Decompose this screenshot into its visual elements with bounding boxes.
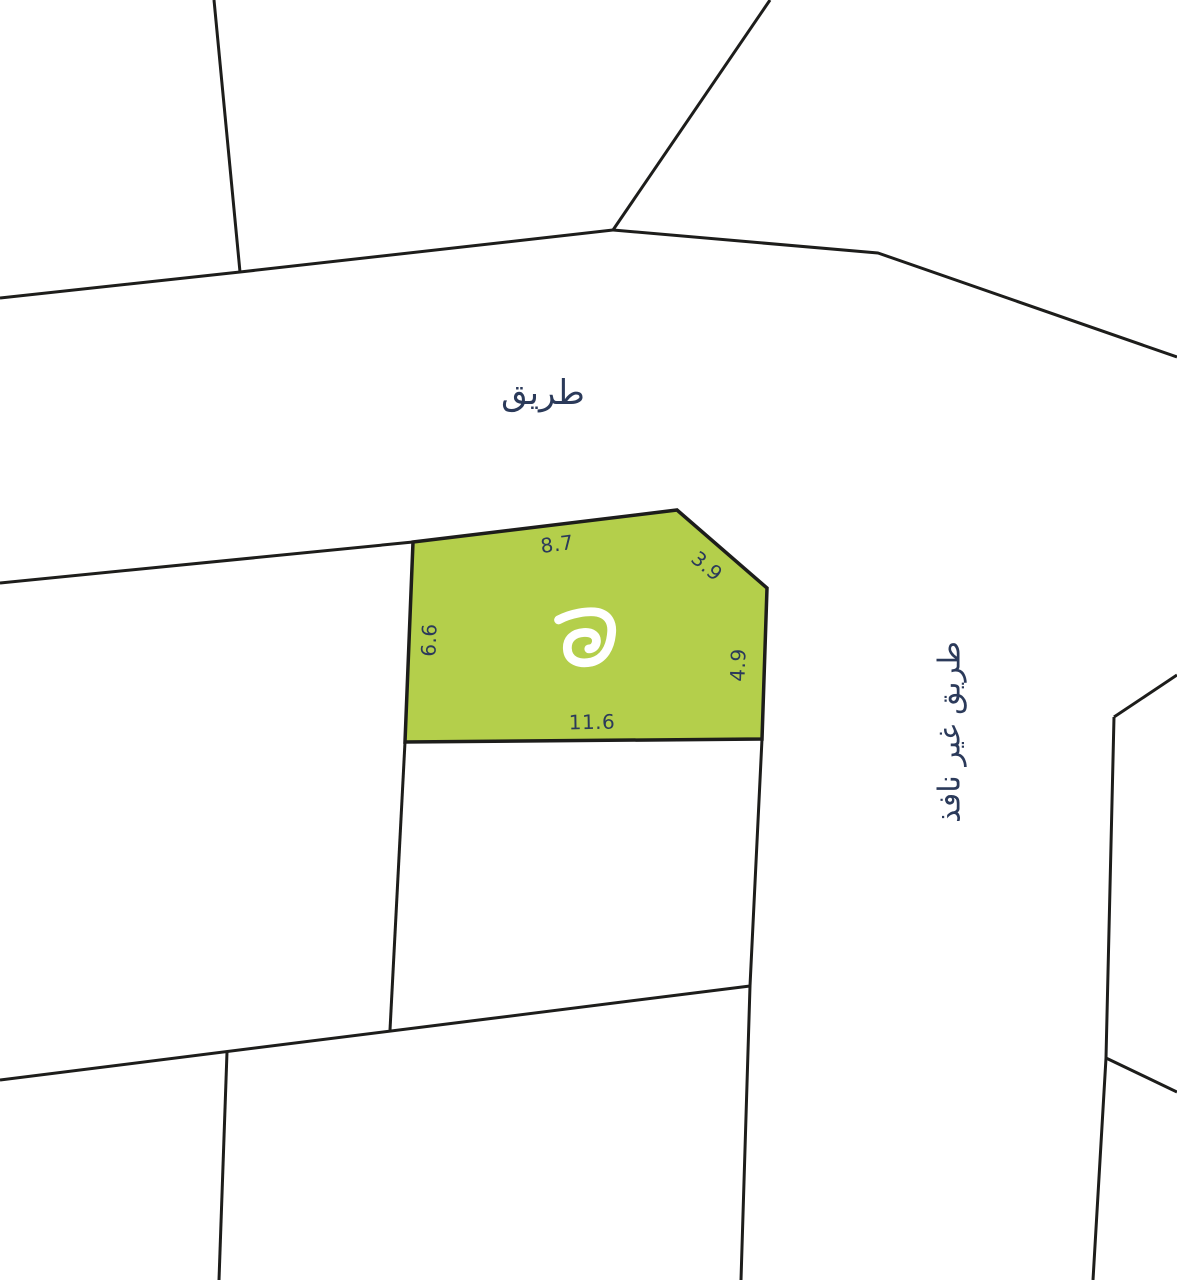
boundary-line-right-lower-diagonal	[1106, 1058, 1177, 1092]
parcel-map-svg	[0, 0, 1177, 1280]
road-label: طريق	[501, 373, 585, 413]
plot-map-canvas: طريق طريق غير نافذ 8.7 3.9 6.6 4.9 11.6	[0, 0, 1177, 1280]
boundary-line-road-upper-left	[0, 230, 613, 298]
boundary-line-midleft	[0, 542, 413, 583]
boundary-line-bottomleft-vertical	[219, 1052, 227, 1280]
boundary-line-right-upper-diagonal	[1114, 675, 1177, 717]
dimension-label-right: 4.9	[725, 648, 750, 682]
dimension-label-left: 6.6	[416, 623, 441, 657]
highlighted-plot[interactable]	[405, 510, 767, 742]
dimension-label-bottom: 11.6	[569, 710, 616, 735]
boundary-line-below-plot-right	[741, 739, 762, 1280]
boundary-line-right-vertical	[1093, 717, 1114, 1280]
boundary-line-lower-diagonal	[0, 986, 750, 1080]
boundary-line-topcenter-diagonal	[613, 0, 770, 230]
boundary-line-below-plot-left	[390, 742, 405, 1030]
dimension-label-top: 8.7	[539, 530, 575, 558]
boundary-line-topleft-vertical	[214, 0, 240, 272]
dead-end-road-label: طريق غير نافذ	[933, 641, 968, 823]
boundary-line-road-upper-right	[613, 230, 1177, 357]
